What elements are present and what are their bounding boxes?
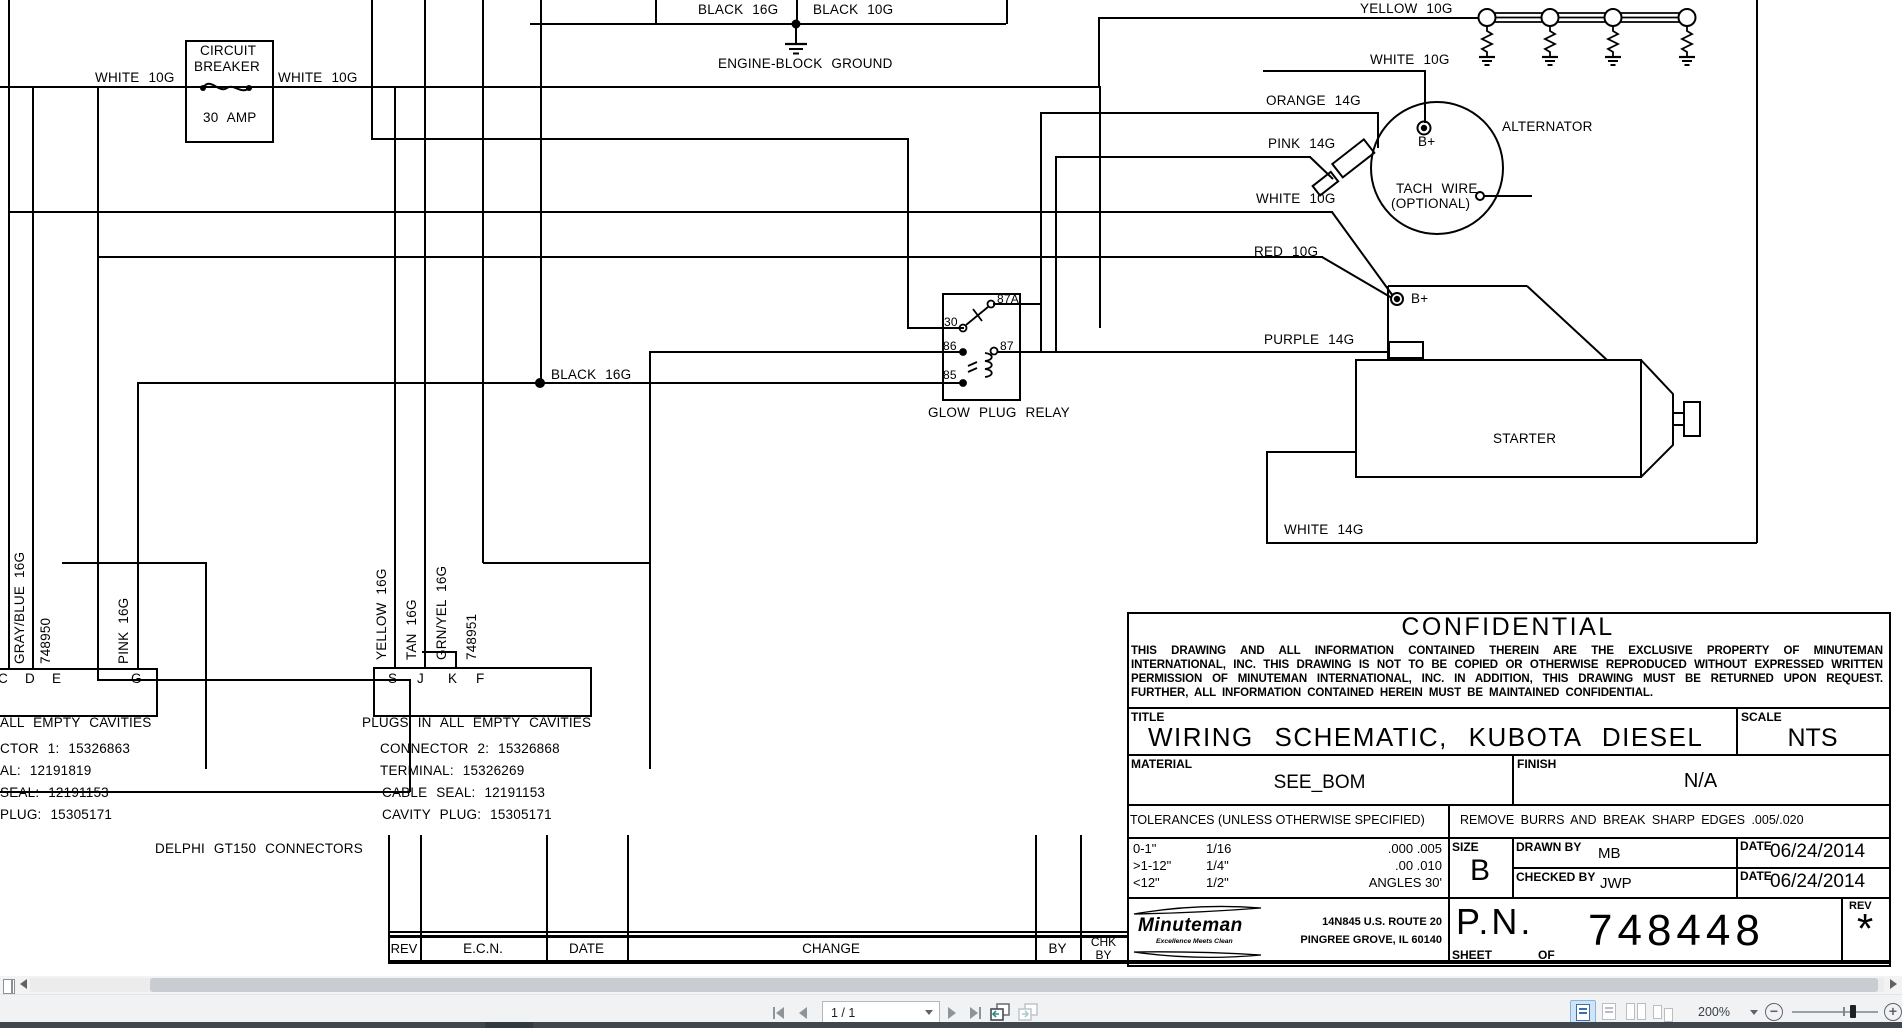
wire-junction-dot [535,378,545,388]
schematic-label: J [417,670,424,687]
schematic-label: ORANGE 14G [1266,92,1361,109]
zoom-out-button[interactable]: − [1765,1003,1783,1021]
schematic-label: BLACK 16G [551,366,631,383]
alternator-symbol [1310,102,1532,234]
sidebar-toggle-button[interactable] [3,979,15,994]
white10g-diagonal [1332,212,1393,296]
schematic-label: TERMINAL: 15326269 [380,762,524,779]
chk-col-header-line1: CHK [1080,935,1127,949]
schematic-canvas: WHITE 10GWHITE 10GCIRCUITBREAKER30 AMPBL… [0,0,1902,976]
schematic-label: E [52,670,61,687]
drawn-by-label: DRAWN BY [1516,840,1581,854]
confidential-text-line2: INTERNATIONAL, INC. THIS DRAWING IS NOT … [1131,659,1883,673]
address-line1: 14N845 U.S. ROUTE 20 [1260,916,1442,928]
tol-range-3: <12" [1133,875,1160,890]
schematic-label: S [388,670,397,687]
previous-view-button[interactable] [988,1001,1012,1023]
schematic-label: WHITE 10G [1370,51,1450,68]
scale-label: SCALE [1741,710,1782,724]
schematic-label: WHITE 10G [278,69,358,86]
ecn-col-header: E.C.N. [420,941,546,956]
tol-dec-1: .000 .005 [1290,841,1442,856]
schematic-label: AL: 12191819 [0,762,91,779]
address-line2: PINGREE GROVE, IL 60140 [1260,934,1442,946]
schematic-label: PURPLE 14G [1264,331,1354,348]
schematic-vertical-label: GRN/YEL 16G [434,566,449,660]
checked-by-value: JWP [1600,875,1632,892]
schematic-label: BLACK 10G [813,1,893,18]
rev-col-header: REV [388,941,420,956]
scroll-left-button[interactable] [20,979,27,989]
zoom-slider[interactable] [1792,1011,1878,1013]
schematic-label: SEAL: 12191153 [0,784,109,801]
last-page-button[interactable] [970,1003,981,1023]
finish-value: N/A [1512,770,1889,793]
tol-range-2: >1-12" [1133,858,1171,873]
checked-date-value: 06/24/2014 [1770,871,1865,893]
schematic-vertical-label: TAN 16G [404,599,419,660]
two-page-continuous-view-button[interactable] [1651,1000,1675,1023]
schematic-label: CTOR 1: 15326863 [0,740,130,757]
confidential-text-line3: PERMISSION OF MINUTEMAN INTERNATIONAL, I… [1131,673,1883,687]
zoom-dropdown-caret-icon[interactable] [1750,1010,1758,1015]
company-logo-text: Minuteman [1138,915,1243,937]
tol-frac-1: 1/16 [1206,841,1231,856]
schematic-label: C [0,670,8,687]
page-dropdown-caret-icon[interactable] [925,1010,933,1015]
schematic-label: ENGINE-BLOCK GROUND [718,55,893,72]
next-view-button[interactable] [1016,1001,1040,1023]
schematic-label: DELPHI GT150 CONNECTORS [155,840,363,857]
schematic-label: WHITE 14G [1284,521,1364,538]
schematic-label: ALTERNATOR [1502,118,1593,135]
tol-dec-3: ANGLES 30' [1290,875,1442,890]
schematic-label: GLOW PLUG RELAY [928,404,1070,421]
tol-dec-2: .00 .010 [1290,858,1442,873]
starter-symbol [1356,286,1700,477]
tol-range-1: 0-1" [1133,841,1156,856]
pn-label: P.N. [1456,901,1533,943]
schematic-label: 87 [1000,338,1014,355]
confidential-text-line1: THIS DRAWING AND ALL INFORMATION CONTAIN… [1131,645,1883,659]
glow-plugs-symbol [1479,13,1688,22]
schematic-label: B+ [1418,133,1435,150]
page-number-value: 1 / 1 [823,1006,925,1020]
drawn-date-label: DATE [1740,839,1772,853]
page-number-input[interactable]: 1 / 1 [822,1001,940,1024]
size-label: SIZE [1452,840,1479,854]
schematic-label: CIRCUIT [200,42,256,59]
drawing-title: WIRING SCHEMATIC, KUBOTA DIESEL [1148,722,1703,753]
tol-frac-3: 1/2" [1206,875,1229,890]
schematic-label: PLUG: 15305171 [0,806,112,823]
schematic-label: CONNECTOR 2: 15326868 [380,740,560,757]
remove-burrs-label: REMOVE BURRS AND BREAK SHARP EDGES .005/… [1460,813,1804,827]
glow-plug [1605,9,1622,65]
taskbar-edge-segment [485,1022,533,1028]
schematic-label: (OPTIONAL) [1391,195,1470,212]
material-label: MATERIAL [1131,757,1192,771]
horizontal-scrollbar[interactable] [0,976,1902,994]
schematic-label: B+ [1411,290,1428,307]
checked-by-label: CHECKED BY [1516,870,1595,884]
finish-label: FINISH [1517,757,1556,771]
company-tagline: Excellence Meets Clean [1156,938,1233,945]
schematic-label: D [25,670,35,687]
schematic-label: F [476,670,484,687]
part-number: 748448 [1588,906,1765,956]
prev-page-button[interactable] [799,1003,807,1023]
schematic-label: STARTER [1493,430,1556,447]
two-page-view-button[interactable] [1624,1000,1648,1023]
schematic-label: GLOW PLUGS [1531,0,1629,4]
schematic-label: PINK 14G [1268,135,1335,152]
change-col-header: CHANGE [627,941,1035,956]
glow-plug [1479,9,1496,65]
by-col-header: BY [1035,941,1080,956]
circuit-breaker-symbol [200,84,252,91]
zoom-in-button[interactable]: + [1884,1003,1902,1021]
tol-frac-2: 1/4" [1206,858,1229,873]
material-value: SEE_BOM [1127,772,1512,794]
schematic-label: CABLE SEAL: 12191153 [382,784,545,801]
glow-plug [1679,9,1696,65]
drawn-by-value: MB [1598,845,1621,862]
schematic-label: YELLOW 10G [1360,0,1453,17]
confidential-text-line4: FURTHER, ALL INFORMATION CONTAINED HEREI… [1131,687,1883,699]
scroll-right-button[interactable] [1890,979,1897,989]
size-value: B [1448,854,1512,888]
zoom-level-value: 200% [1698,1005,1730,1019]
relay-internals [960,301,998,387]
schematic-label: CAVITY PLUG: 15305171 [382,806,552,823]
schematic-label: 87A [997,291,1019,308]
schematic-vertical-label: 748951 [464,614,479,660]
checked-date-label: DATE [1740,869,1772,883]
next-page-button[interactable] [948,1003,956,1023]
pdf-viewer-window: WHITE 10GWHITE 10GCIRCUITBREAKER30 AMPBL… [0,0,1902,1028]
schematic-label: 85 [943,367,957,384]
date-col-header: DATE [546,941,627,956]
schematic-label: 30 [944,314,958,331]
schematic-vertical-label: PINK 16G [116,598,131,664]
first-page-button[interactable] [773,1003,784,1023]
schematic-label: K [448,670,457,687]
schematic-label: ALL EMPTY CAVITIES [0,714,151,731]
h-scrollbar-thumb[interactable] [150,978,1878,992]
tolerances-label: TOLERANCES (UNLESS OTHERWISE SPECIFIED) [1130,813,1425,827]
schematic-label: WHITE 10G [1256,190,1336,207]
continuous-view-button[interactable] [1597,1000,1621,1023]
scale-value: NTS [1736,724,1889,753]
schematic-label: PLUGS IN ALL EMPTY CAVITIES [362,714,591,731]
zoom-slider-tick [1843,1007,1845,1016]
schematic-label: 86 [943,338,957,355]
chk-col-header-line2: BY [1080,948,1127,962]
schematic-vertical-label: GRAY/BLUE 16G [12,552,27,664]
drawn-date-value: 06/24/2014 [1770,841,1865,863]
schematic-label: 30 AMP [203,109,256,126]
zoom-slider-handle[interactable] [1850,1005,1856,1018]
confidential-heading: CONFIDENTIAL [1127,613,1889,642]
rev-value: * [1843,905,1887,953]
schematic-label: BLACK 16G [698,1,778,18]
schematic-vertical-label: YELLOW 16G [374,568,389,660]
taskbar-edge-strip [0,1022,1902,1028]
engine-ground-symbol [785,20,807,54]
glow-plug [1542,9,1559,65]
schematic-label: BREAKER [194,58,260,75]
schematic-vertical-label: 748950 [38,618,53,664]
schematic-label: G [131,670,142,687]
red10g-diagonal [1322,257,1392,298]
schematic-label: RED 10G [1254,243,1318,260]
schematic-label: WHITE 10G [95,69,175,86]
